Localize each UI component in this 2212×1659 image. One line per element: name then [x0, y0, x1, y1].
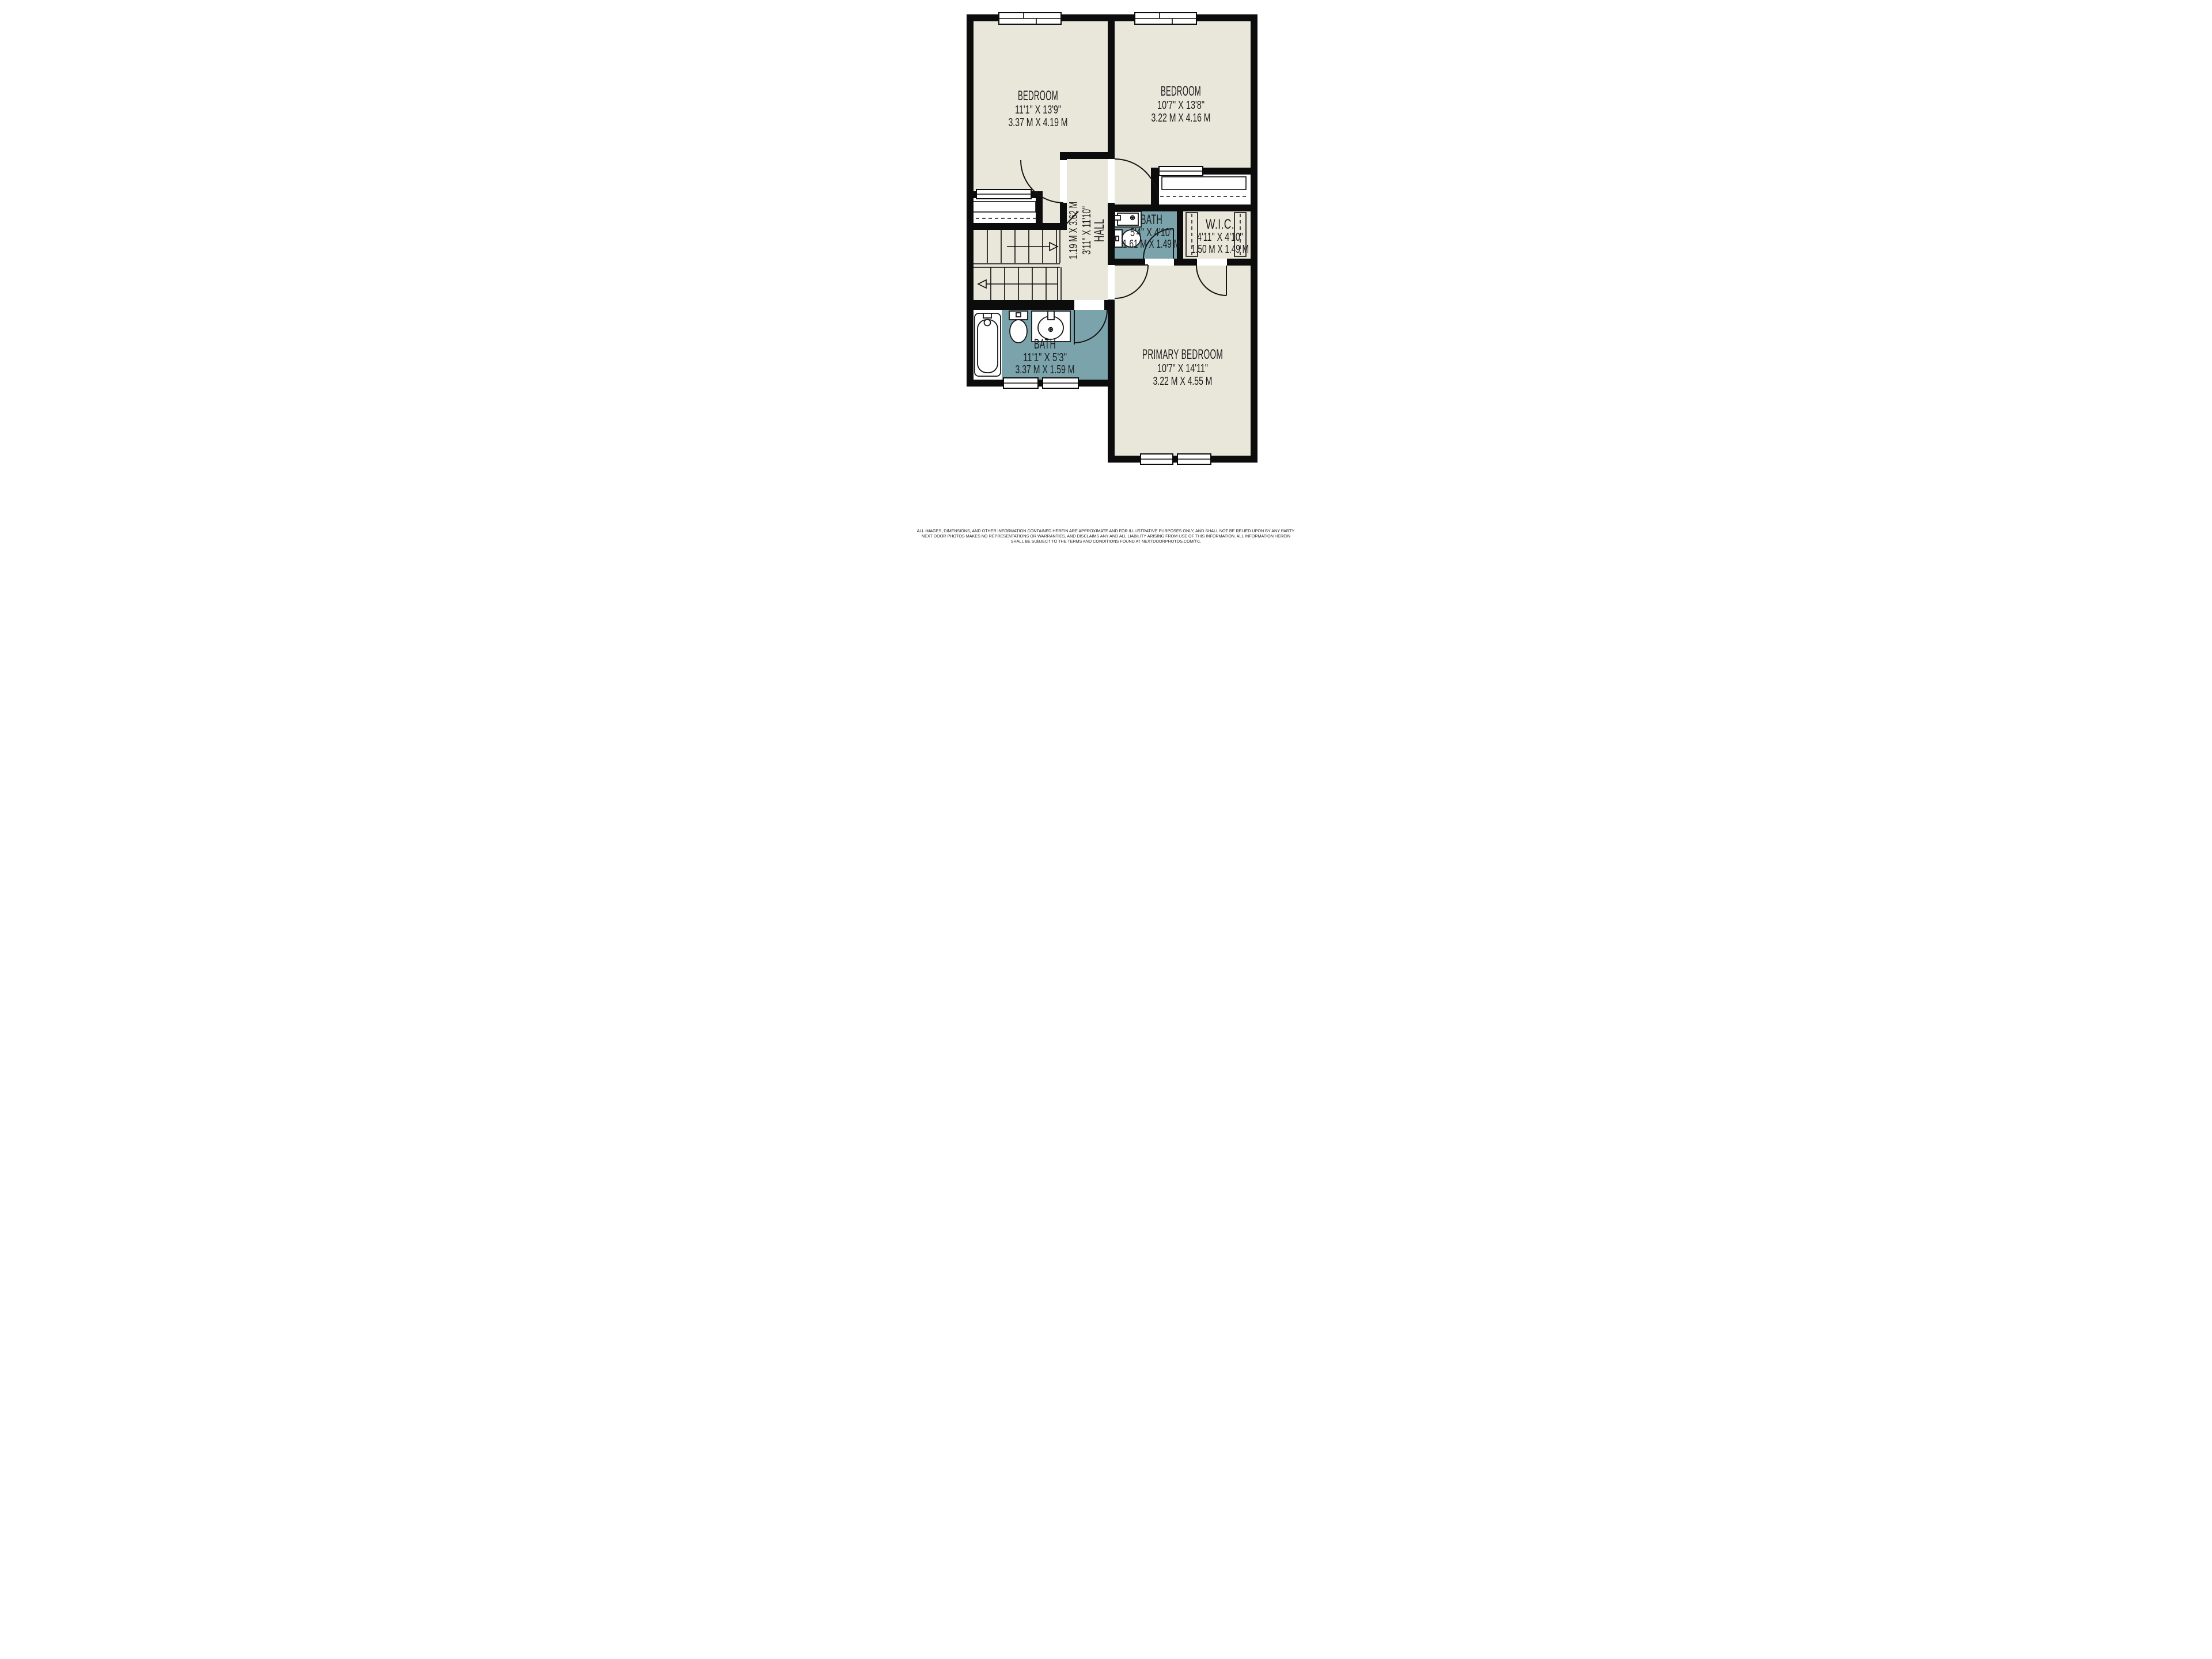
- svg-text:BEDROOM: BEDROOM: [1161, 84, 1201, 99]
- window-bedroom2-top: [1135, 13, 1196, 24]
- tub-faucet-icon: [983, 313, 991, 318]
- door-opening-wic: [1197, 259, 1227, 266]
- svg-text:3.22 M X 4.16 M: 3.22 M X 4.16 M: [1152, 112, 1211, 124]
- door-opening-bedroom2: [1108, 159, 1115, 203]
- svg-text:ALL IMAGES, DIMENSIONS, AND OT: ALL IMAGES, DIMENSIONS, AND OTHER INFORM…: [917, 528, 1295, 533]
- faucet-lower-icon: [1048, 311, 1054, 320]
- window-primary-right: [1177, 454, 1211, 464]
- svg-text:5'4" X 4'10": 5'4" X 4'10": [1130, 226, 1173, 239]
- window-bath-lower-right: [1043, 378, 1078, 388]
- disclaimer: ALL IMAGES, DIMENSIONS, AND OTHER INFORM…: [917, 528, 1295, 544]
- door-opening-bath-upper: [1145, 259, 1174, 266]
- door-opening-bedroom1: [1060, 160, 1067, 203]
- toilet-lower-bowl: [1010, 320, 1027, 343]
- window-bedroom1-top: [999, 13, 1061, 24]
- svg-text:4'11" X 4'10": 4'11" X 4'10": [1197, 231, 1243, 244]
- svg-text:HALL: HALL: [1092, 219, 1107, 242]
- svg-text:1.19 M X 3.62 M: 1.19 M X 3.62 M: [1067, 202, 1080, 259]
- svg-text:SHALL BE SUBJECT TO THE TERMS: SHALL BE SUBJECT TO THE TERMS AND CONDIT…: [1011, 539, 1202, 544]
- svg-text:1.61 M X 1.49 M: 1.61 M X 1.49 M: [1123, 238, 1180, 251]
- closet-bedroom1-slider: [976, 190, 1031, 199]
- svg-text:1.50 M X 1.49 M: 1.50 M X 1.49 M: [1191, 243, 1249, 256]
- closet-bedroom2-slider: [1159, 166, 1203, 176]
- svg-text:3'11" X 11'10": 3'11" X 11'10": [1081, 206, 1093, 255]
- faucet-upper-icon: [1115, 215, 1120, 220]
- svg-text:3.37 M X 1.59 M: 3.37 M X 1.59 M: [1016, 363, 1075, 376]
- svg-text:11'1" X 13'9": 11'1" X 13'9": [1015, 104, 1061, 116]
- floorplan-page: BEDROOM 11'1" X 13'9" 3.37 M X 4.19 M BE…: [737, 0, 1475, 553]
- door-opening-primary: [1108, 265, 1115, 300]
- window-bath-lower-left: [1003, 378, 1038, 388]
- window-primary-left: [1141, 454, 1173, 464]
- svg-text:3.22 M X 4.55 M: 3.22 M X 4.55 M: [1153, 375, 1213, 388]
- svg-text:11'1" X 5'3": 11'1" X 5'3": [1023, 351, 1067, 364]
- svg-text:NEXT DOOR PHOTOS MAKES NO REPR: NEXT DOOR PHOTOS MAKES NO REPRESENTATION…: [922, 533, 1290, 539]
- svg-text:10'7" X 13'8": 10'7" X 13'8": [1157, 99, 1205, 112]
- svg-text:W.I.C.: W.I.C.: [1206, 217, 1234, 232]
- svg-text:3.37 M X 4.19 M: 3.37 M X 4.19 M: [1009, 116, 1068, 129]
- svg-text:PRIMARY BEDROOM: PRIMARY BEDROOM: [1142, 347, 1223, 362]
- svg-text:BATH: BATH: [1141, 212, 1162, 228]
- svg-text:BEDROOM: BEDROOM: [1018, 88, 1058, 104]
- svg-text:BATH: BATH: [1034, 336, 1056, 352]
- svg-text:10'7" X 14'11": 10'7" X 14'11": [1157, 362, 1208, 375]
- floorplan-svg: BEDROOM 11'1" X 13'9" 3.37 M X 4.19 M BE…: [737, 0, 1475, 553]
- door-opening-bath-lower: [1074, 300, 1104, 310]
